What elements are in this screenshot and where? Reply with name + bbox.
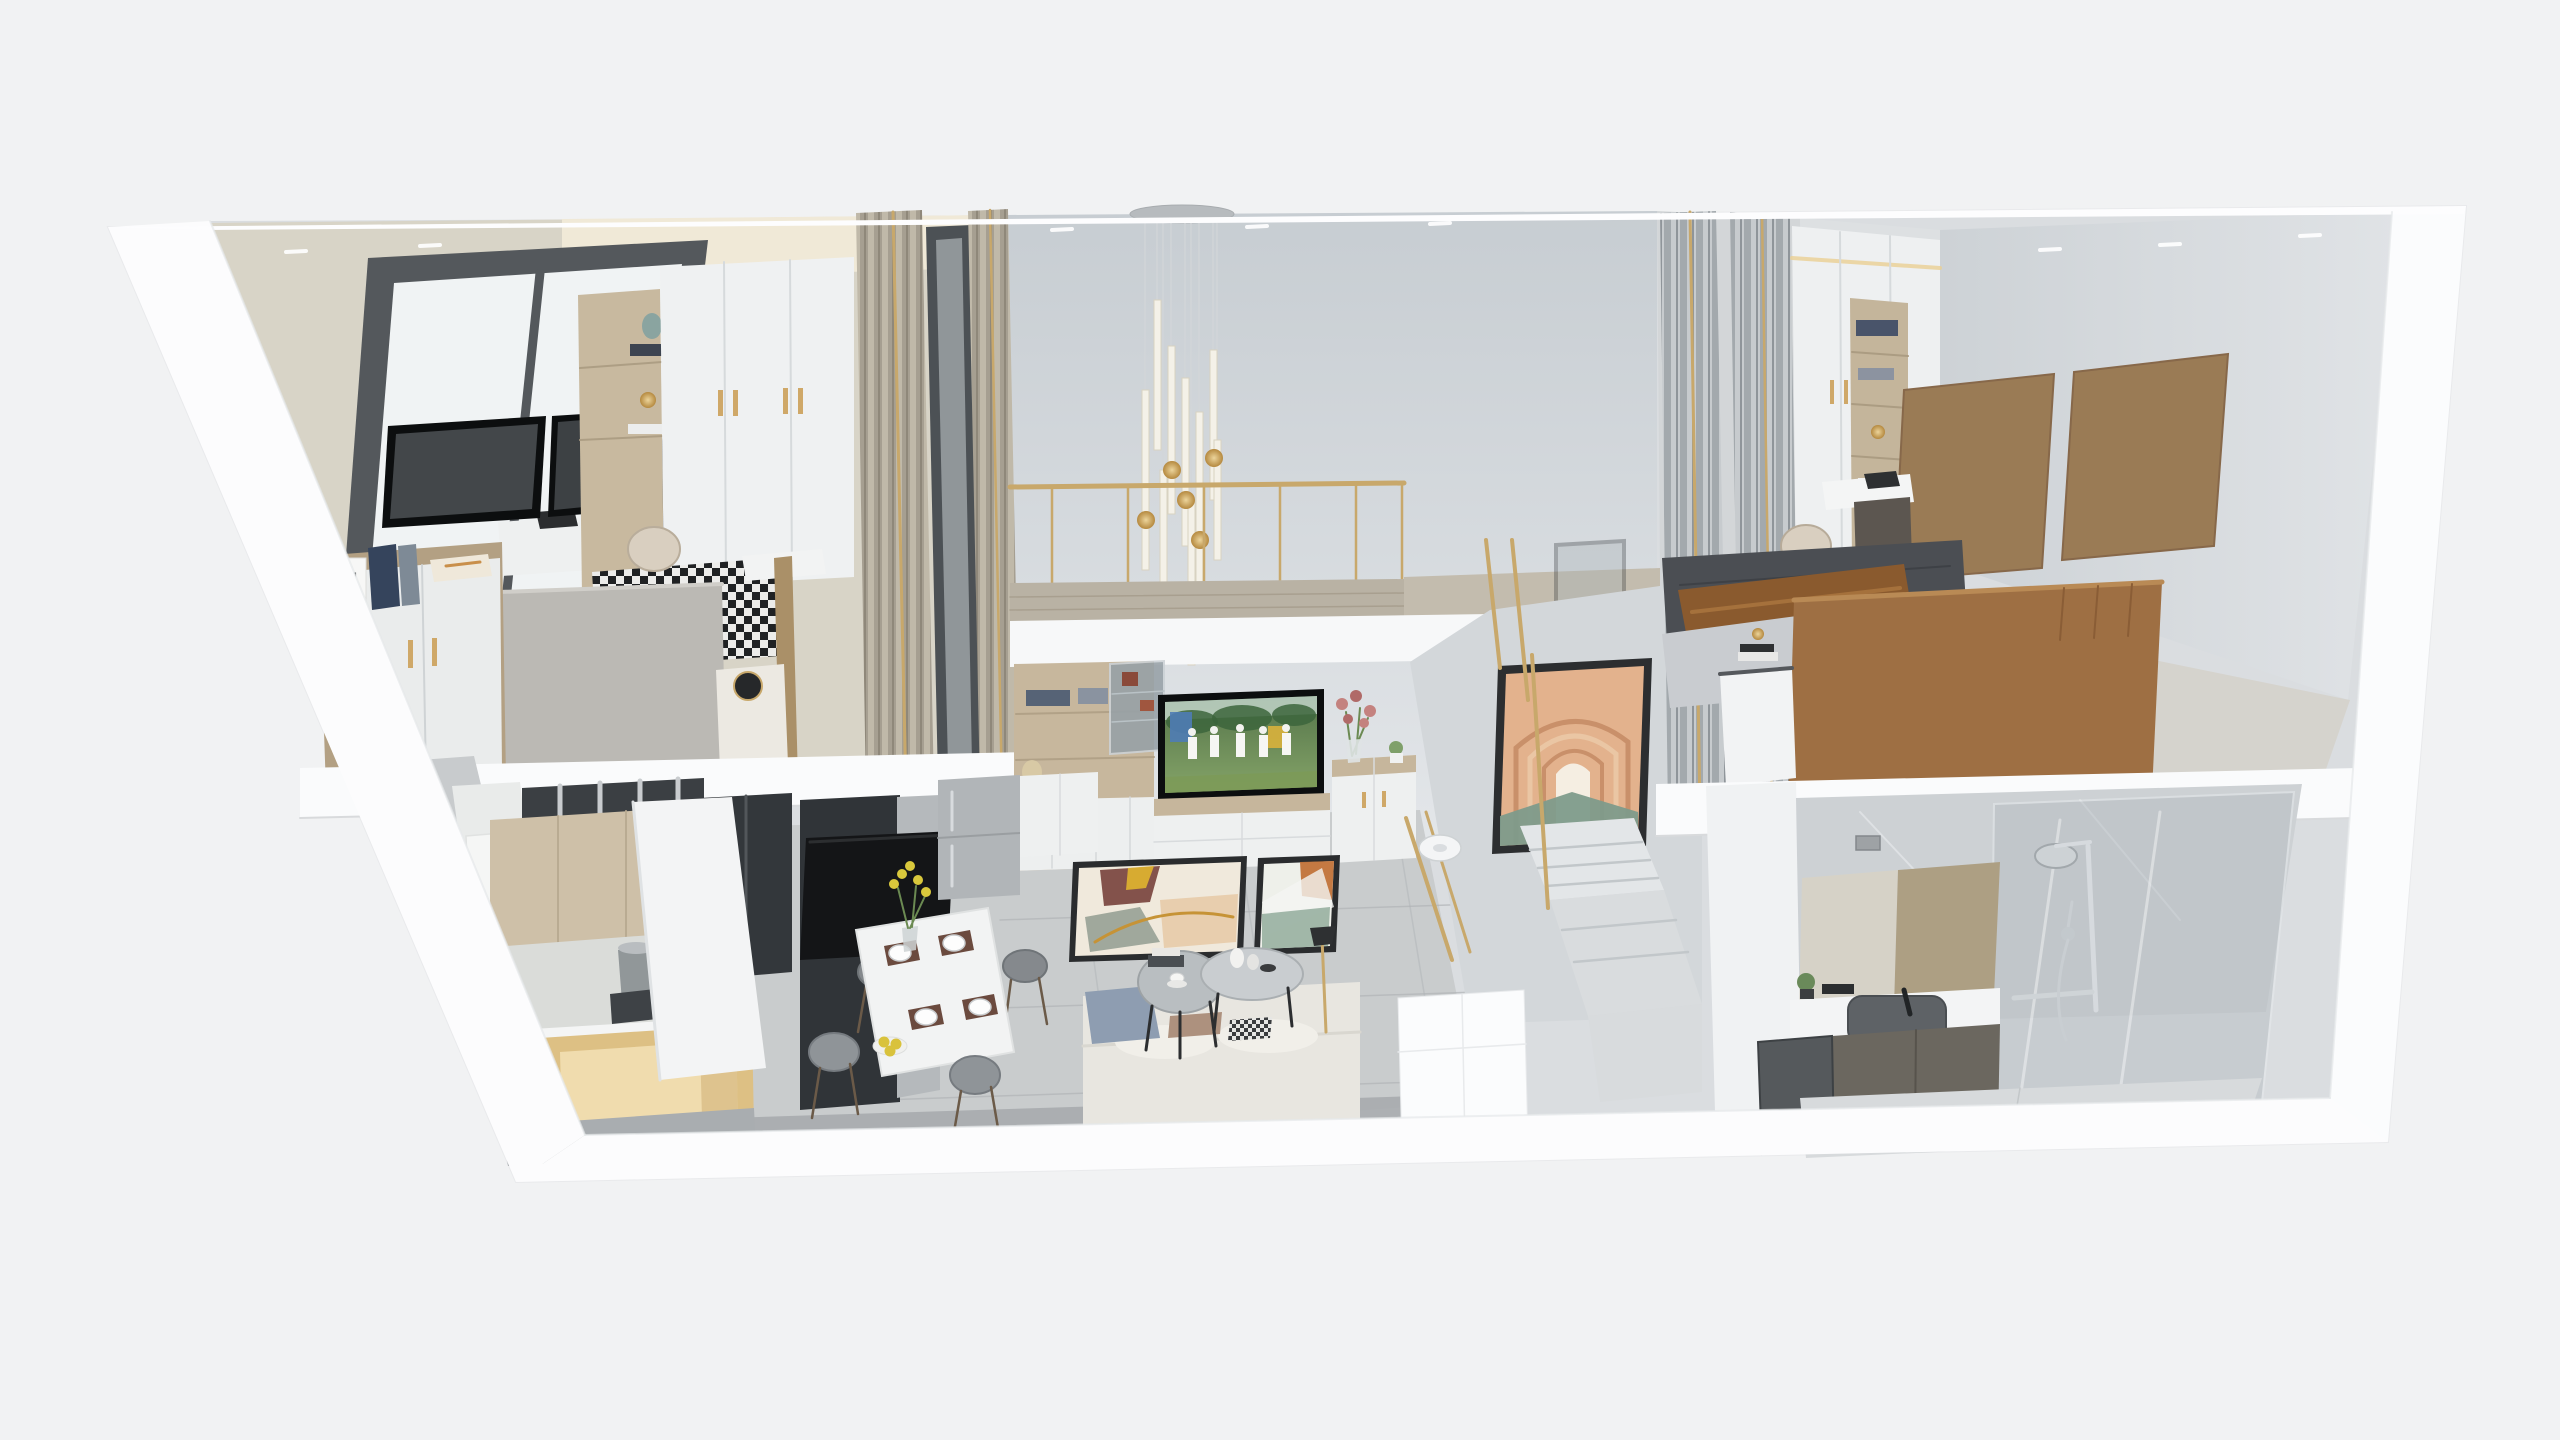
sofa-pattern-cushion [1228,1017,1272,1041]
coffee-saucer [1167,980,1187,988]
lb-sideboard-handle [408,640,413,668]
lb-shelf-vase [642,313,662,339]
lb-shelf-towels [628,424,664,434]
plate [943,935,965,951]
coffee-table-book [1152,948,1180,956]
tv-screen-person [1236,733,1245,757]
pendant-gold-sphere [1191,531,1209,549]
flower-blossom [1343,714,1353,724]
rb-nightstand-books [1740,644,1774,652]
tv-screen-person-head [1259,726,1267,734]
lb-shelf-gold-ball [640,392,656,408]
rb-wardrobe-handle [1830,380,1834,404]
shelf-books [1026,690,1070,706]
artwork-peach-field [1160,894,1238,948]
rb-shelf-books [1856,320,1898,336]
table-vase [902,926,918,952]
plate [969,999,991,1015]
rb-wood-wall-panel [2062,354,2228,560]
yellow-flower [897,869,907,879]
succulent-pot [1390,753,1403,763]
pendant-tube [1196,412,1203,584]
pendant-gold-sphere [1163,461,1181,479]
tv-screen-person-head [1236,724,1244,732]
yellow-flower [889,879,899,889]
yellow-flower [905,861,915,871]
ceiling-spotlight [2300,235,2320,236]
tv-screen-tree [1272,704,1316,726]
hall-sideboard-handle [1382,791,1386,807]
succulent-plant [1389,741,1403,755]
apartment-3d-cutaway-render: 5 [0,0,2560,1440]
plate [915,1009,937,1025]
tv-screen-person-head [1188,728,1196,736]
robot-vacuum-button [1433,844,1447,852]
lb-alarm-clock [734,672,762,700]
lb-sideboard-handle [432,638,437,666]
dining-chair [950,1056,1000,1094]
flower-blossom [1350,690,1362,702]
rb-shelf-trophy [1871,425,1885,439]
stair-landing [1588,1004,1702,1102]
rb-laptop [1864,471,1900,489]
table-dark-bowl [1260,964,1276,972]
tv-screen-person [1259,735,1268,757]
lb-book-blue [368,544,400,610]
vanity-plant-pot [1800,989,1814,999]
flower-blossom [1336,698,1348,710]
flower-blossom [1359,718,1369,728]
table-vase-white [1230,948,1244,968]
rb-shelf-books [1858,368,1894,380]
glass-cabinet-item [1140,700,1154,711]
lb-desk-chair [628,527,680,571]
dining-chair [1003,950,1047,982]
rb-nightstand-ornament [1752,628,1764,640]
dining-chair [809,1033,859,1071]
table-vase-white [1247,954,1259,970]
pendant-gold-sphere [1205,449,1223,467]
ceiling-spotlight [1247,226,1267,227]
lb-wardrobe-handle [718,390,723,416]
lb-wardrobe-handle [783,388,788,414]
ceiling-spotlight [1430,223,1450,224]
lb-wardrobe [660,257,854,587]
tv-screen-person [1210,735,1219,757]
flower-vase [1346,739,1362,763]
pendant-tube [1168,346,1175,514]
lb-shelf-books [630,344,664,356]
ceiling-spotlight [2040,249,2060,250]
ceiling-spotlight [1052,229,1072,230]
floor-lamp-shade [1310,926,1336,946]
rb-wardrobe-handle [1844,380,1848,404]
shelf-books [1078,688,1108,704]
toilet-paper-holder [1856,836,1880,850]
tv-screen-person-head [1210,726,1218,734]
pendant-gold-sphere [1177,491,1195,509]
yellow-flower [913,875,923,885]
pendant-gold-sphere [1137,511,1155,529]
rb-leather-headboard [1788,582,2162,806]
lb-monitor-left-screen [390,424,538,519]
flower-blossom [1364,705,1376,717]
lb-wardrobe-handle [733,390,738,416]
vanity-plant [1797,973,1815,991]
bath-mirror-cabinet-right [1894,862,2000,1008]
yellow-flower [921,887,931,897]
tv-screen-person [1188,737,1197,759]
coffee-table-book [1148,955,1184,967]
rb-nightstand-books [1738,652,1778,661]
pendant-tube [1154,300,1161,450]
glass-cabinet-item [1122,672,1138,686]
lemon [879,1037,890,1048]
ceiling-spotlight [2160,244,2180,245]
hall-sideboard-handle [1362,792,1366,808]
tv-screen-person-head [1282,724,1290,732]
pendant-tube [1142,390,1149,570]
ceiling-spotlight [420,245,440,246]
lb-wardrobe-handle [798,388,803,414]
ceiling-spotlight [286,251,306,252]
rb-nightstand [1720,668,1796,786]
apartment-render-stage: 5 [0,0,2560,1440]
tv-screen-person [1282,733,1291,755]
vanity-books [1822,984,1854,994]
lemon [885,1046,896,1057]
kitchen-tall-cabinets [1020,772,1098,857]
